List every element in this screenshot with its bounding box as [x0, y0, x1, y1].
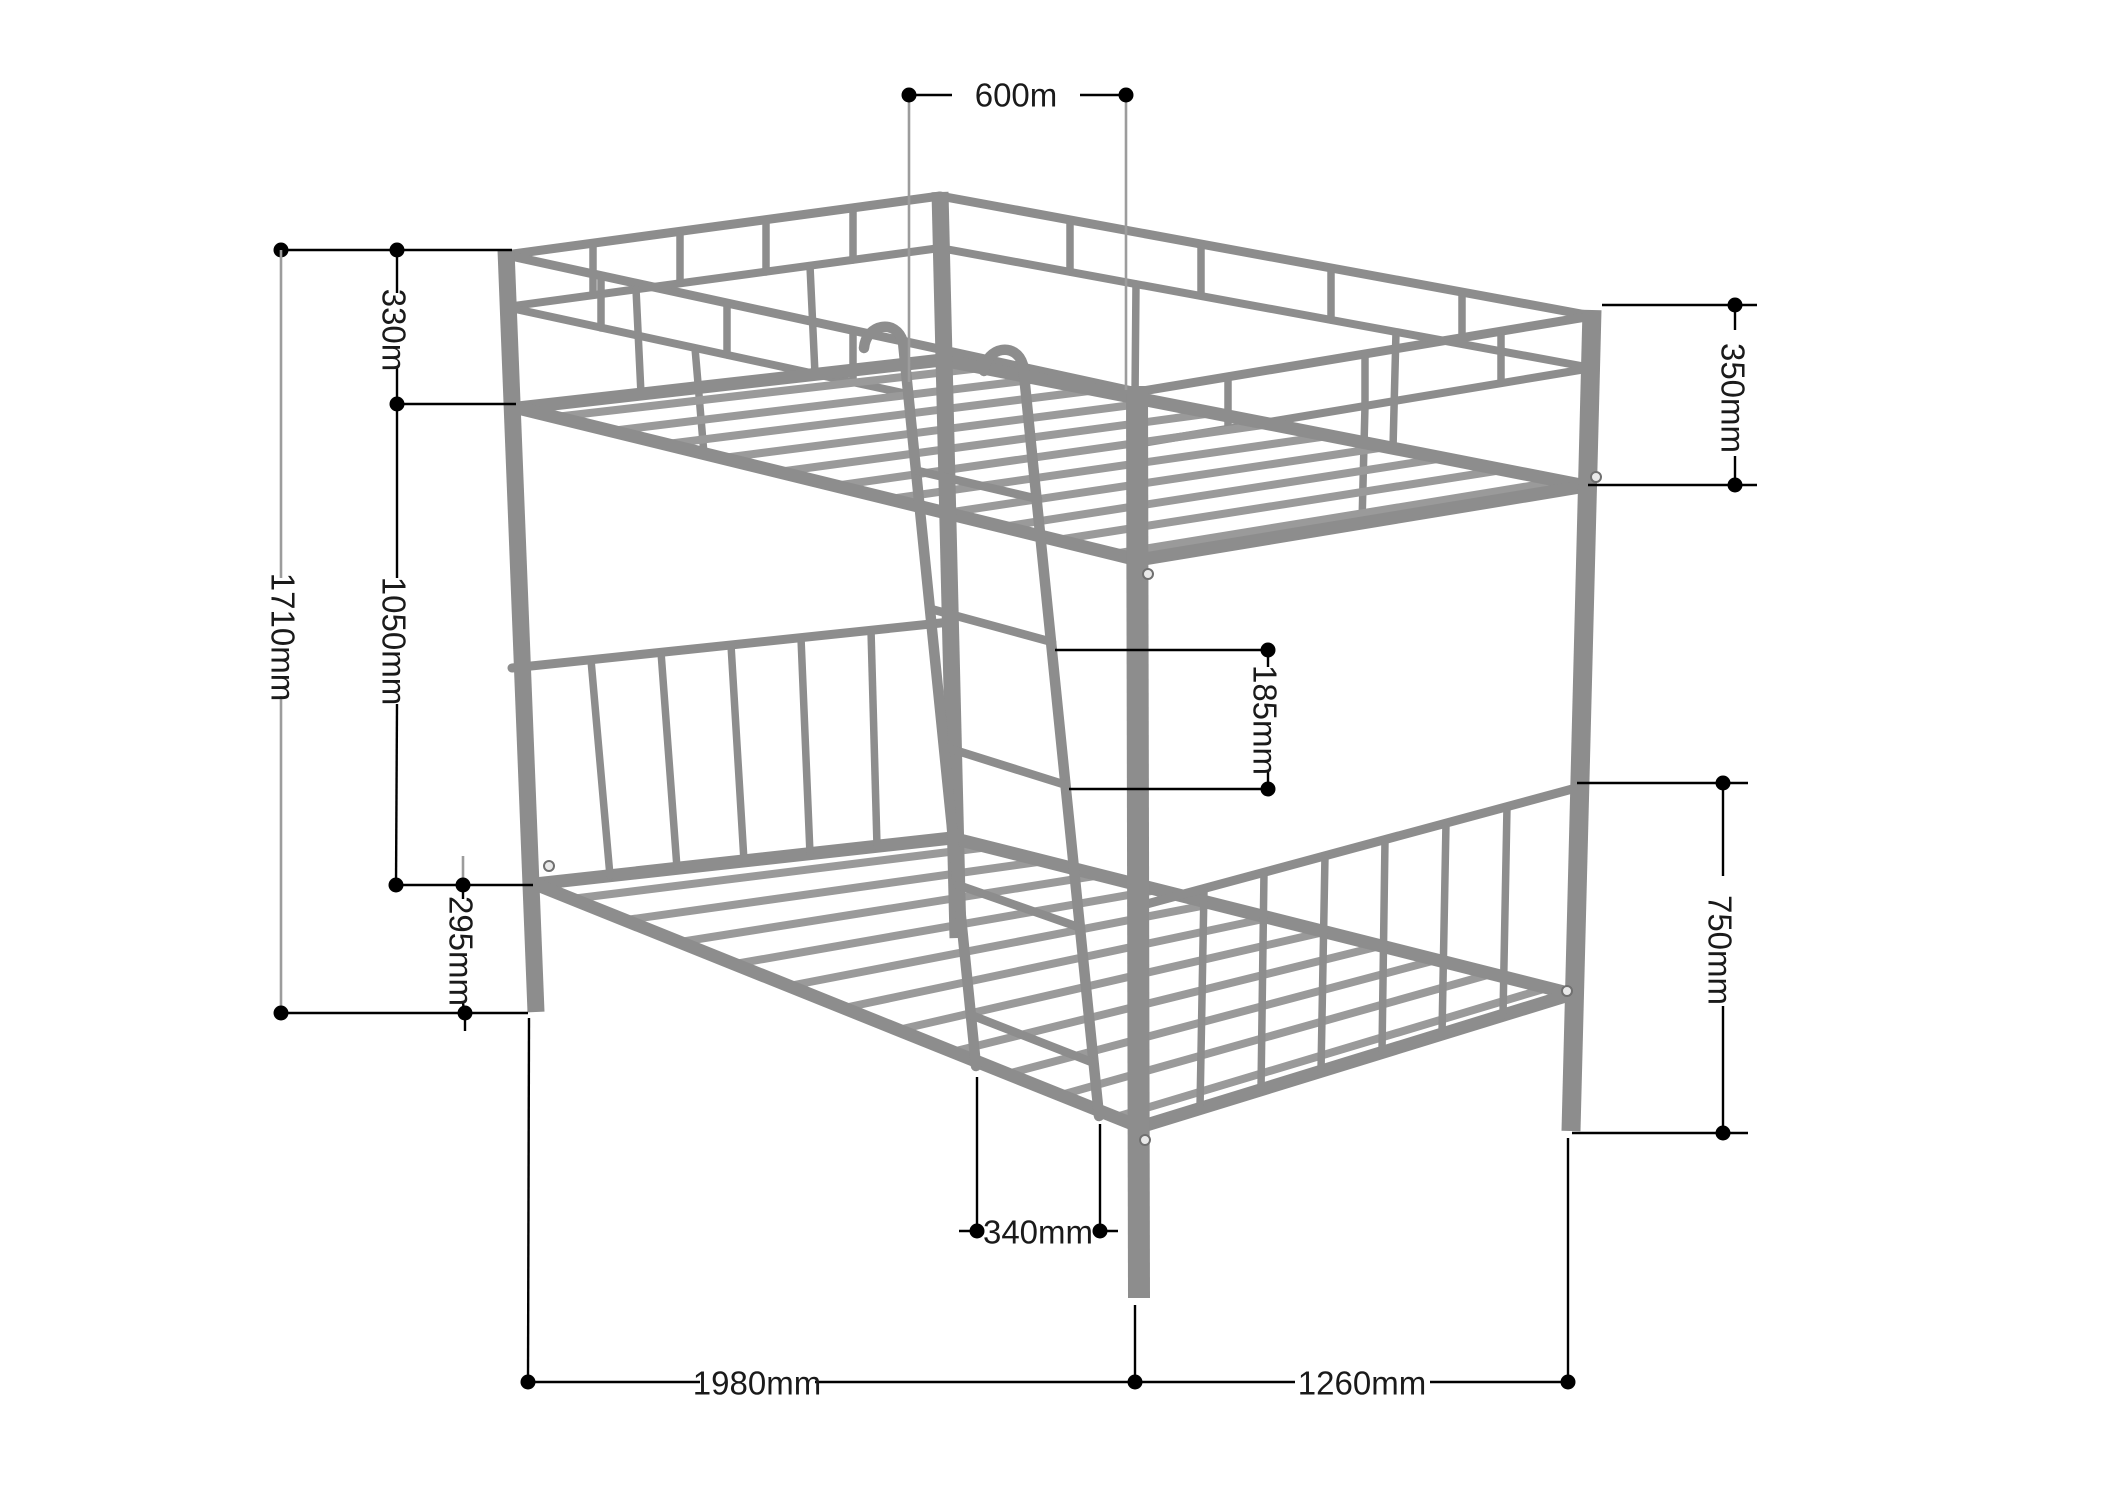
bunk-bed-dimension-diagram: 600m 330m 1710mm 1050mm 295mm: [0, 0, 2102, 1500]
top-bunk-platform: [518, 360, 1586, 560]
dimension-label-295: 295mm: [443, 896, 480, 1006]
dimension-label-350: 350mm: [1715, 343, 1752, 453]
dimension-label-340: 340mm: [983, 1214, 1093, 1251]
dimension-label-185: 185mm: [1247, 665, 1284, 775]
dimension-guardrail-350: 350mm: [1588, 298, 1757, 493]
dimension-footboard-750: 750mm: [1572, 776, 1748, 1141]
bottom-bunk-headboard: [512, 622, 950, 876]
dimension-label-1260: 1260mm: [1298, 1365, 1426, 1402]
dimension-label-600: 600m: [975, 77, 1058, 114]
dimension-footprint-bottom: 1980mm 1260mm: [521, 1018, 1576, 1402]
diagram-canvas: 600m 330m 1710mm 1050mm 295mm: [0, 0, 2102, 1500]
dimension-platform-height-295: 295mm: [443, 856, 480, 1013]
dimension-label-1980: 1980mm: [693, 1365, 821, 1402]
dimension-label-1050: 1050mm: [376, 577, 413, 705]
dimension-guardrail-330: 330m: [274, 243, 513, 405]
bottom-bunk-slats: [571, 847, 1547, 1117]
dimension-label-750: 750mm: [1702, 895, 1739, 1005]
dimension-rung-spacing-185: 185mm: [1055, 643, 1284, 797]
bed-frame: [506, 192, 1601, 1298]
dimension-label-330: 330m: [376, 289, 413, 372]
dimension-label-1710: 1710mm: [265, 573, 302, 701]
